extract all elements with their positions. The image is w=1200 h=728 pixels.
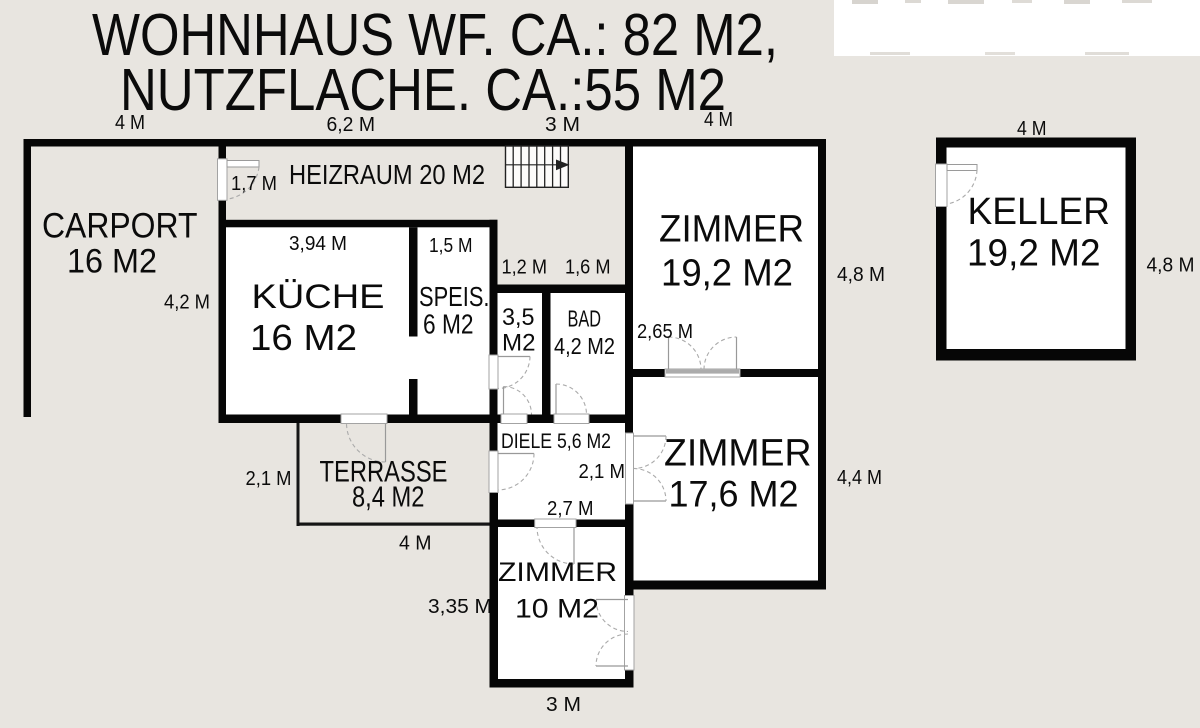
svg-text:M2: M2 <box>502 330 536 357</box>
svg-text:6 M2: 6 M2 <box>423 309 474 340</box>
svg-text:1,5 M: 1,5 M <box>429 235 473 257</box>
svg-text:16 M2: 16 M2 <box>67 243 157 281</box>
svg-text:HEIZRAUM 20 M2: HEIZRAUM 20 M2 <box>289 159 485 190</box>
svg-text:2,65 M: 2,65 M <box>637 321 693 343</box>
svg-text:17,6 M2: 17,6 M2 <box>669 474 799 515</box>
svg-text:ZIMMER: ZIMMER <box>498 557 617 587</box>
svg-text:4 M: 4 M <box>704 109 733 131</box>
svg-text:16 M2: 16 M2 <box>250 317 357 358</box>
svg-text:1,6 M: 1,6 M <box>565 257 611 279</box>
svg-text:19,2 M2: 19,2 M2 <box>967 233 1101 275</box>
svg-text:CARPORT: CARPORT <box>42 207 198 246</box>
svg-text:3 M: 3 M <box>545 114 580 136</box>
svg-text:3 M: 3 M <box>546 694 581 716</box>
svg-text:NUTZFLACHE. CA.:55 M2: NUTZFLACHE. CA.:55 M2 <box>120 57 726 123</box>
svg-text:4,8 M: 4,8 M <box>837 264 885 286</box>
svg-text:19,2 M2: 19,2 M2 <box>661 253 793 295</box>
svg-text:3,35 M: 3,35 M <box>428 596 492 618</box>
svg-text:SPEIS.: SPEIS. <box>419 281 490 312</box>
svg-text:3,5: 3,5 <box>502 304 535 331</box>
svg-text:BAD: BAD <box>568 306 602 332</box>
svg-text:1,2 M: 1,2 M <box>502 257 548 279</box>
svg-text:4 M: 4 M <box>399 533 432 555</box>
svg-text:4 M: 4 M <box>115 112 145 134</box>
svg-text:2,1 M: 2,1 M <box>579 461 626 483</box>
svg-text:1,7 M: 1,7 M <box>231 173 277 195</box>
svg-text:4,8 M: 4,8 M <box>1147 255 1195 277</box>
svg-text:4 M: 4 M <box>1017 118 1047 140</box>
svg-text:KELLER: KELLER <box>968 191 1111 233</box>
svg-text:2,1 M: 2,1 M <box>246 468 292 490</box>
svg-text:ZIMMER: ZIMMER <box>664 433 812 475</box>
svg-text:2,7 M: 2,7 M <box>547 498 594 520</box>
svg-text:ZIMMER: ZIMMER <box>659 209 804 251</box>
svg-text:10 M2: 10 M2 <box>515 594 599 624</box>
svg-text:6,2 M: 6,2 M <box>327 114 376 136</box>
svg-text:DIELE 5,6 M2: DIELE 5,6 M2 <box>501 430 611 453</box>
svg-text:8,4 M2: 8,4 M2 <box>352 482 425 514</box>
svg-text:3,94 M: 3,94 M <box>289 233 347 255</box>
svg-text:4,2 M: 4,2 M <box>164 292 210 314</box>
svg-text:4,2 M2: 4,2 M2 <box>554 333 615 359</box>
svg-text:KÜCHE: KÜCHE <box>252 278 385 316</box>
svg-text:4,4 M: 4,4 M <box>837 467 882 489</box>
